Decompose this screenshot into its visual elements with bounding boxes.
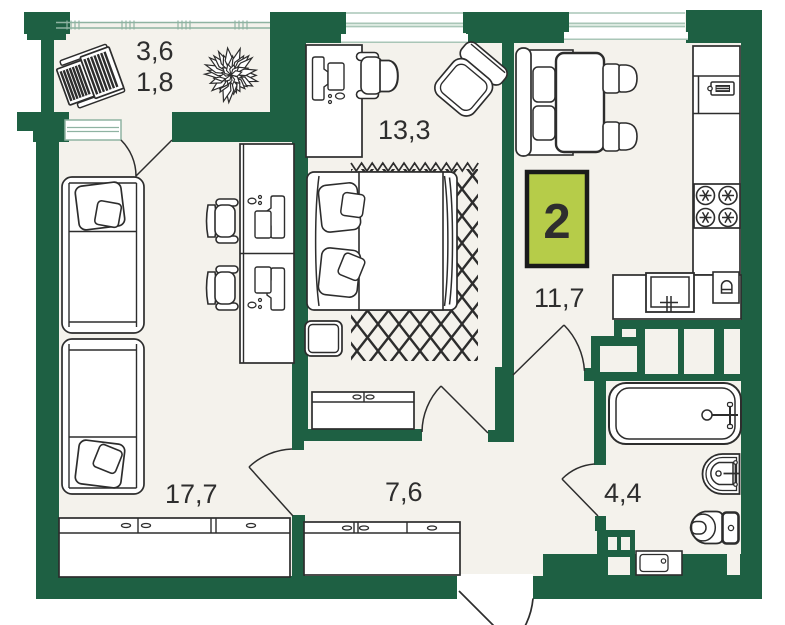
svg-text:3,6: 3,6 bbox=[136, 36, 174, 66]
svg-text:7,6: 7,6 bbox=[385, 477, 423, 507]
svg-text:1,8: 1,8 bbox=[136, 67, 174, 97]
svg-text:17,7: 17,7 bbox=[165, 479, 218, 509]
svg-text:2: 2 bbox=[543, 195, 570, 249]
svg-text:11,7: 11,7 bbox=[534, 283, 585, 313]
svg-text:13,3: 13,3 bbox=[378, 115, 431, 145]
svg-text:4,4: 4,4 bbox=[604, 478, 642, 508]
